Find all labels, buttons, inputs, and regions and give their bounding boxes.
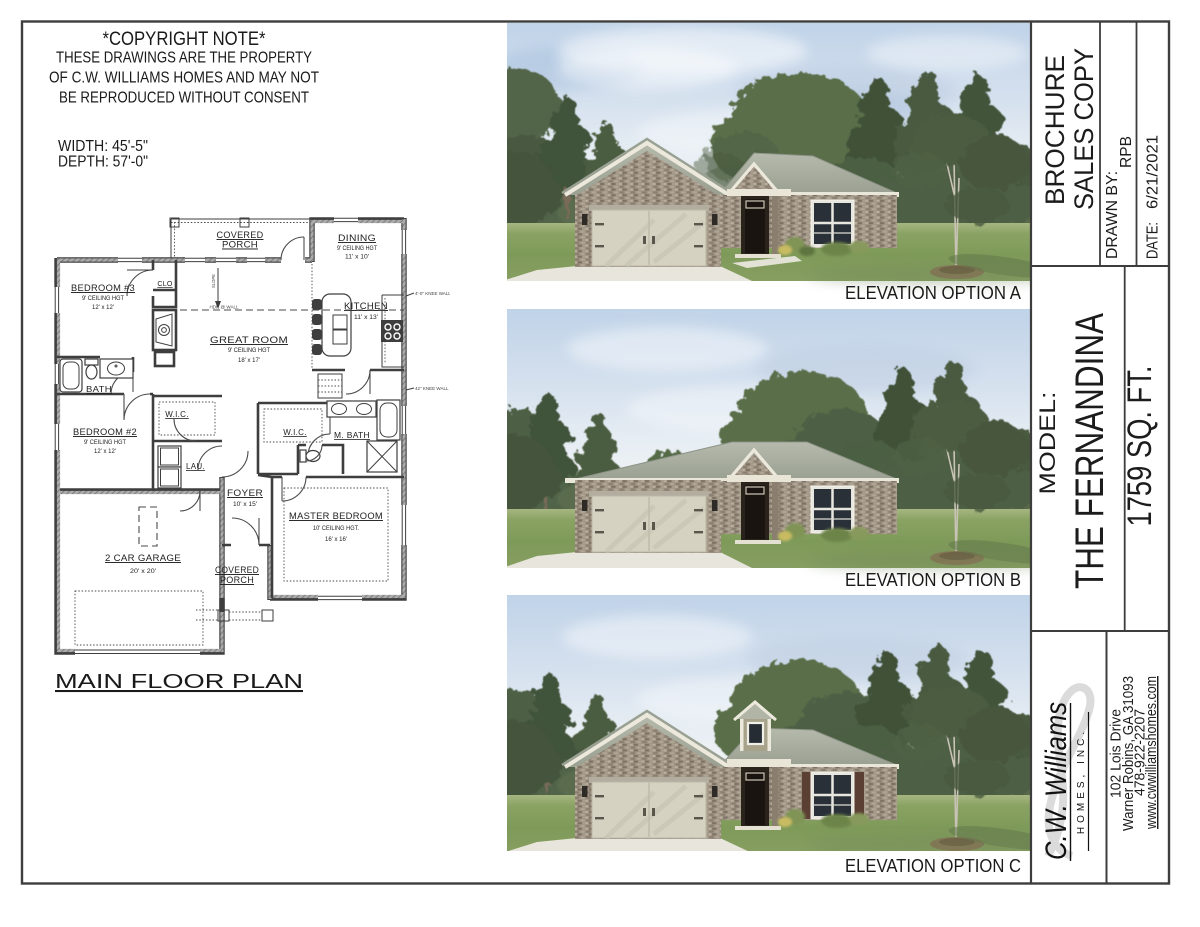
svg-text:ELEVATION OPTION A: ELEVATION OPTION A bbox=[845, 283, 1021, 303]
svg-text:MAIN FLOOR PLAN: MAIN FLOOR PLAN bbox=[55, 670, 303, 693]
svg-text:WIDTH: 45'-5": WIDTH: 45'-5" bbox=[58, 138, 148, 155]
svg-text:*COPYRIGHT NOTE*: *COPYRIGHT NOTE* bbox=[103, 29, 267, 50]
svg-text:THESE DRAWINGS ARE THE PROPERT: THESE DRAWINGS ARE THE PROPERTY bbox=[56, 50, 312, 67]
svg-text:1759 SQ. FT.: 1759 SQ. FT. bbox=[1121, 366, 1159, 527]
svg-text:DEPTH: 57'-0": DEPTH: 57'-0" bbox=[58, 154, 148, 171]
svg-text:THE FERNANDINA: THE FERNANDINA bbox=[1068, 313, 1112, 589]
svg-text:SALES COPY: SALES COPY bbox=[1069, 48, 1099, 210]
svg-text:BE REPRODUCED WITHOUT CONSENT: BE REPRODUCED WITHOUT CONSENT bbox=[59, 90, 309, 107]
svg-text:6/21/2021: 6/21/2021 bbox=[1145, 135, 1162, 209]
svg-text:C.W. Williams: C.W. Williams bbox=[1040, 702, 1073, 860]
svg-text:OF C.W. WILLIAMS HOMES AND MAY: OF C.W. WILLIAMS HOMES AND MAY NOT bbox=[49, 70, 319, 87]
svg-text:www.cwwilliamshomes.com: www.cwwilliamshomes.com bbox=[1144, 676, 1160, 830]
svg-text:HOMES, INC.: HOMES, INC. bbox=[1076, 728, 1087, 834]
svg-text:MODEL:: MODEL: bbox=[1035, 392, 1060, 495]
svg-text:BROCHURE: BROCHURE bbox=[1040, 55, 1070, 205]
svg-text:DATE:: DATE: bbox=[1145, 222, 1162, 259]
svg-text:DRAWN BY:: DRAWN BY: bbox=[1104, 171, 1121, 259]
svg-text:ELEVATION OPTION C: ELEVATION OPTION C bbox=[845, 856, 1021, 876]
svg-text:RPB: RPB bbox=[1118, 136, 1135, 168]
svg-text:ELEVATION OPTION B: ELEVATION OPTION B bbox=[845, 570, 1021, 590]
